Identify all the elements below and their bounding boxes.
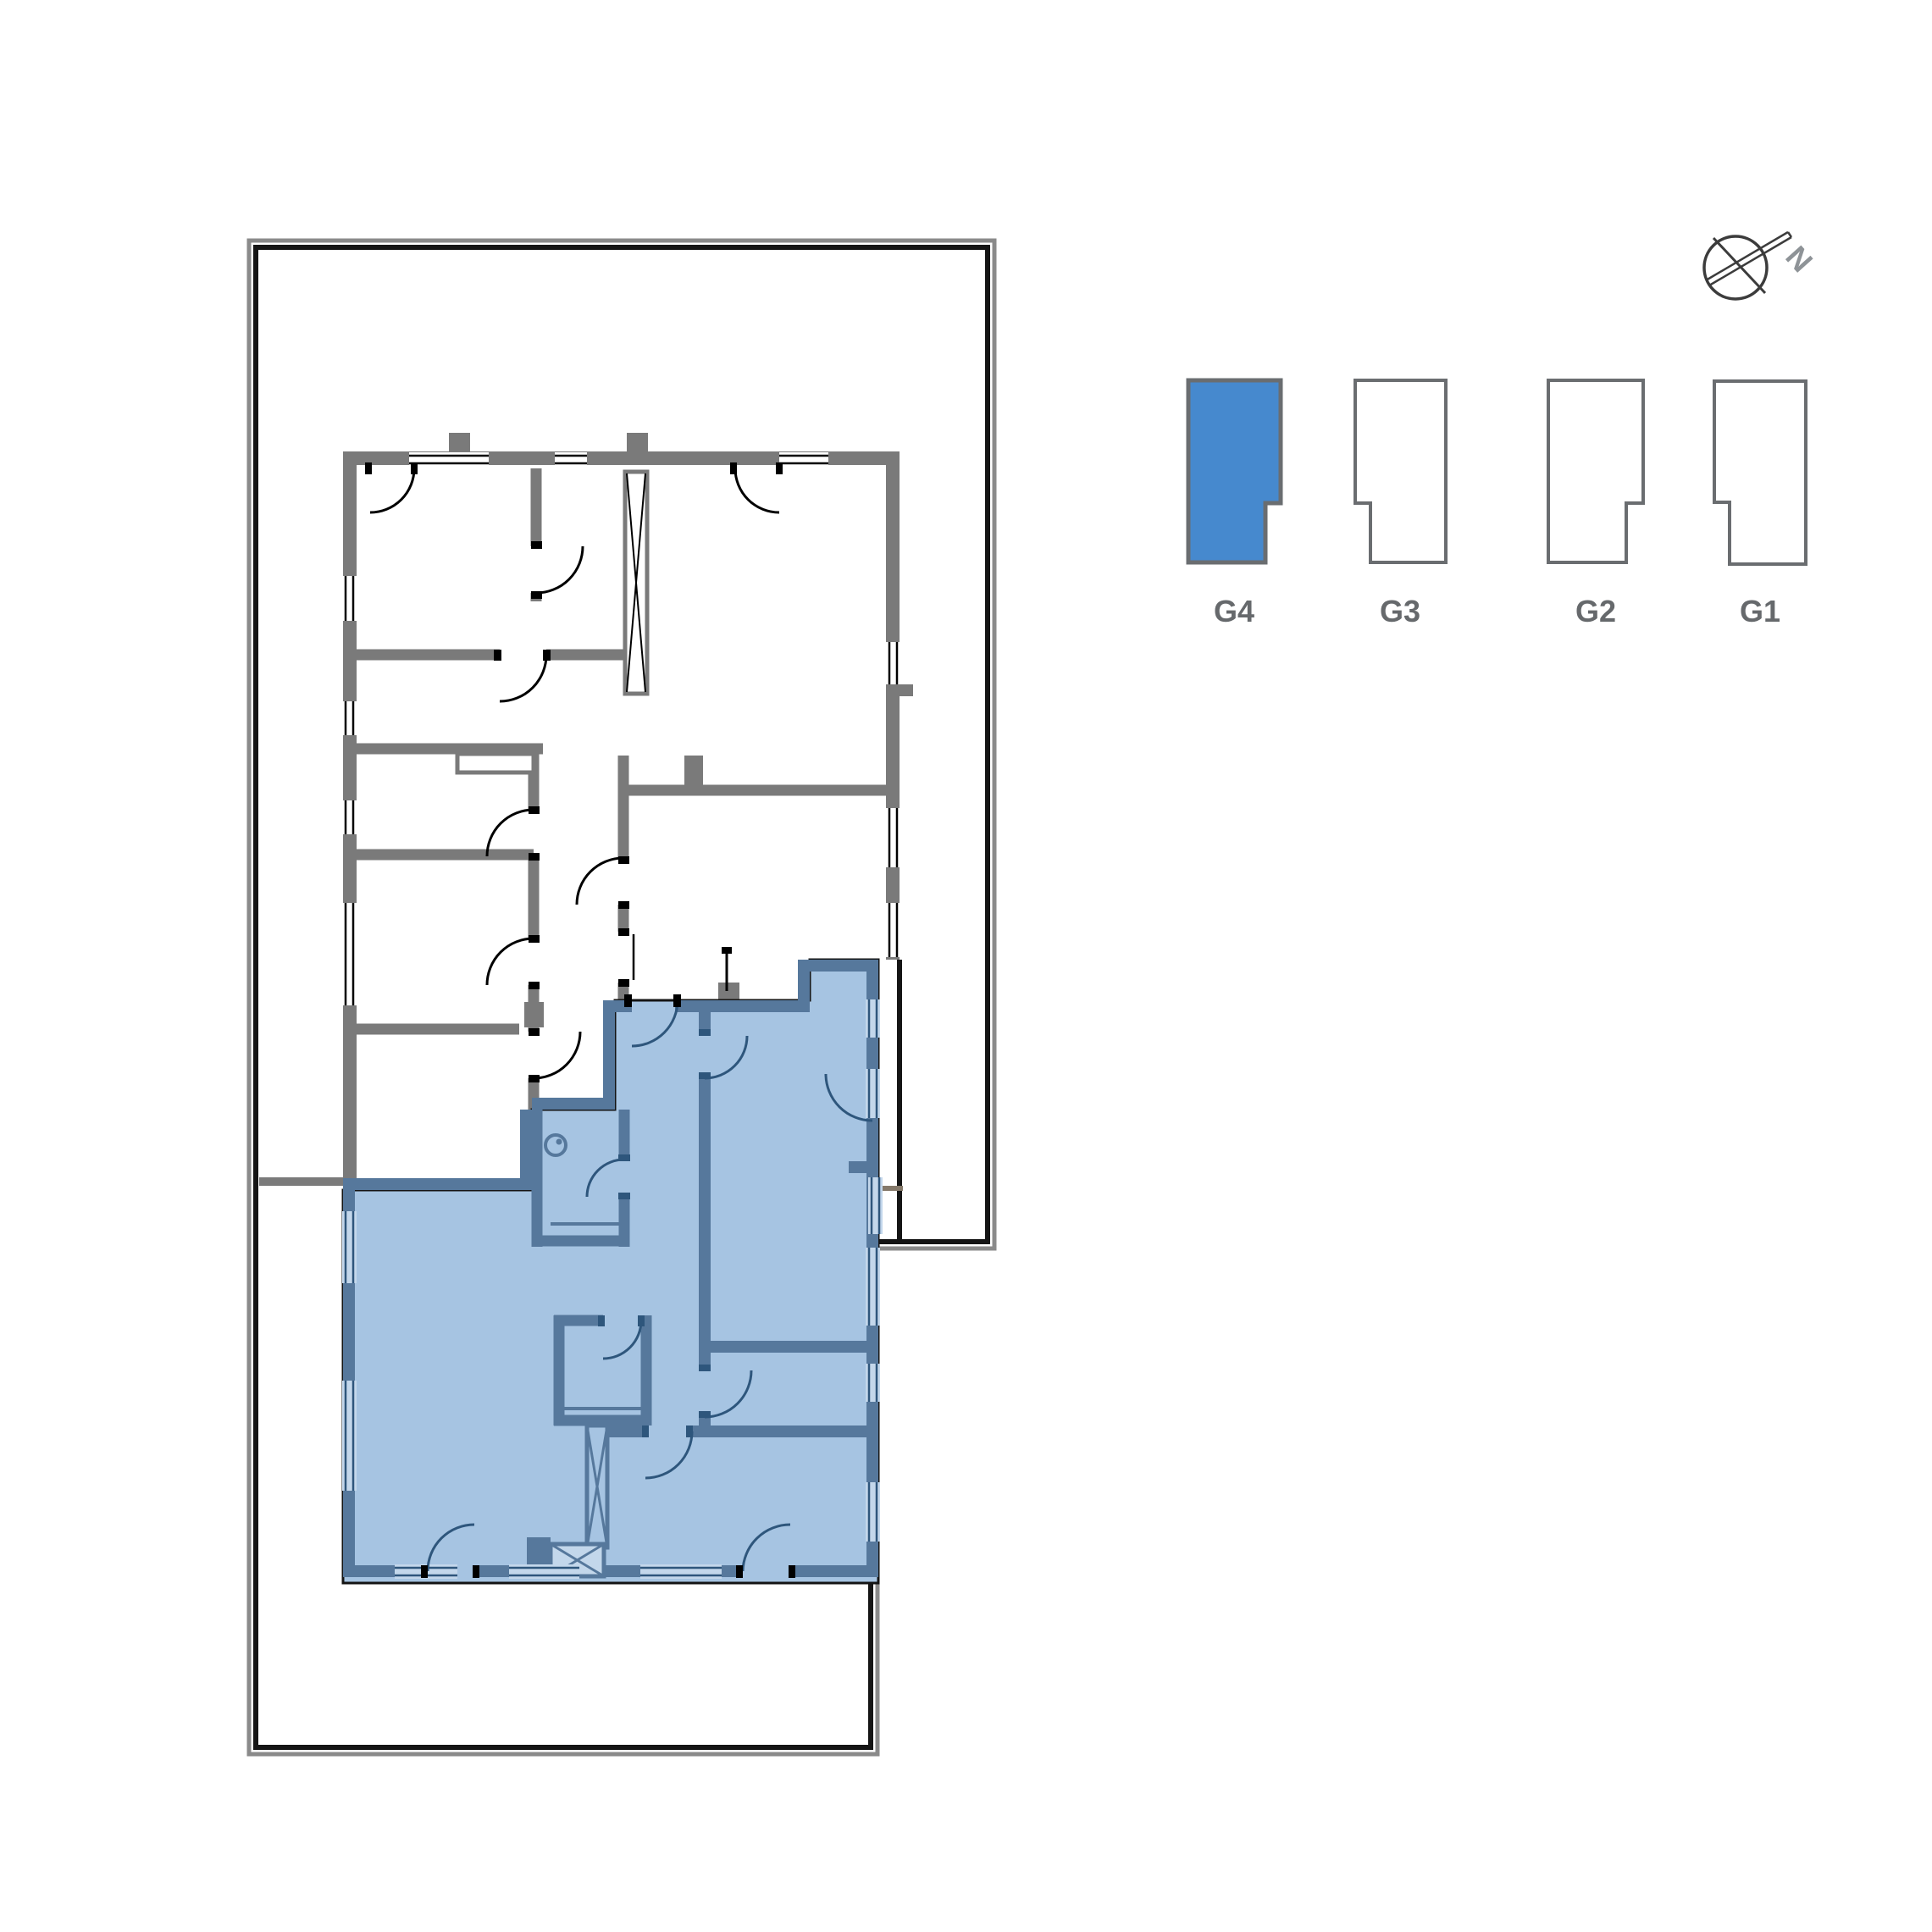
north-compass-icon: N [1704, 232, 1819, 299]
legend-unit-g1[interactable] [1714, 381, 1806, 564]
legend-label-g1[interactable]: G1 [1740, 594, 1780, 628]
floorplan-canvas: G4 G3 G2 G1 N [0, 0, 1932, 1932]
legend-label-g4[interactable]: G4 [1214, 594, 1254, 628]
legend-unit-selector: G4 G3 G2 G1 [1188, 380, 1806, 628]
wall-niche [457, 754, 534, 772]
legend-unit-g4[interactable] [1188, 380, 1281, 562]
legend-unit-g3[interactable] [1355, 380, 1446, 562]
stair-shaft [625, 472, 647, 694]
legend-label-g3[interactable]: G3 [1380, 594, 1420, 628]
compass-north-letter: N [1779, 239, 1819, 279]
legend-unit-g2[interactable] [1548, 380, 1643, 562]
legend-label-g2[interactable]: G2 [1575, 594, 1616, 628]
